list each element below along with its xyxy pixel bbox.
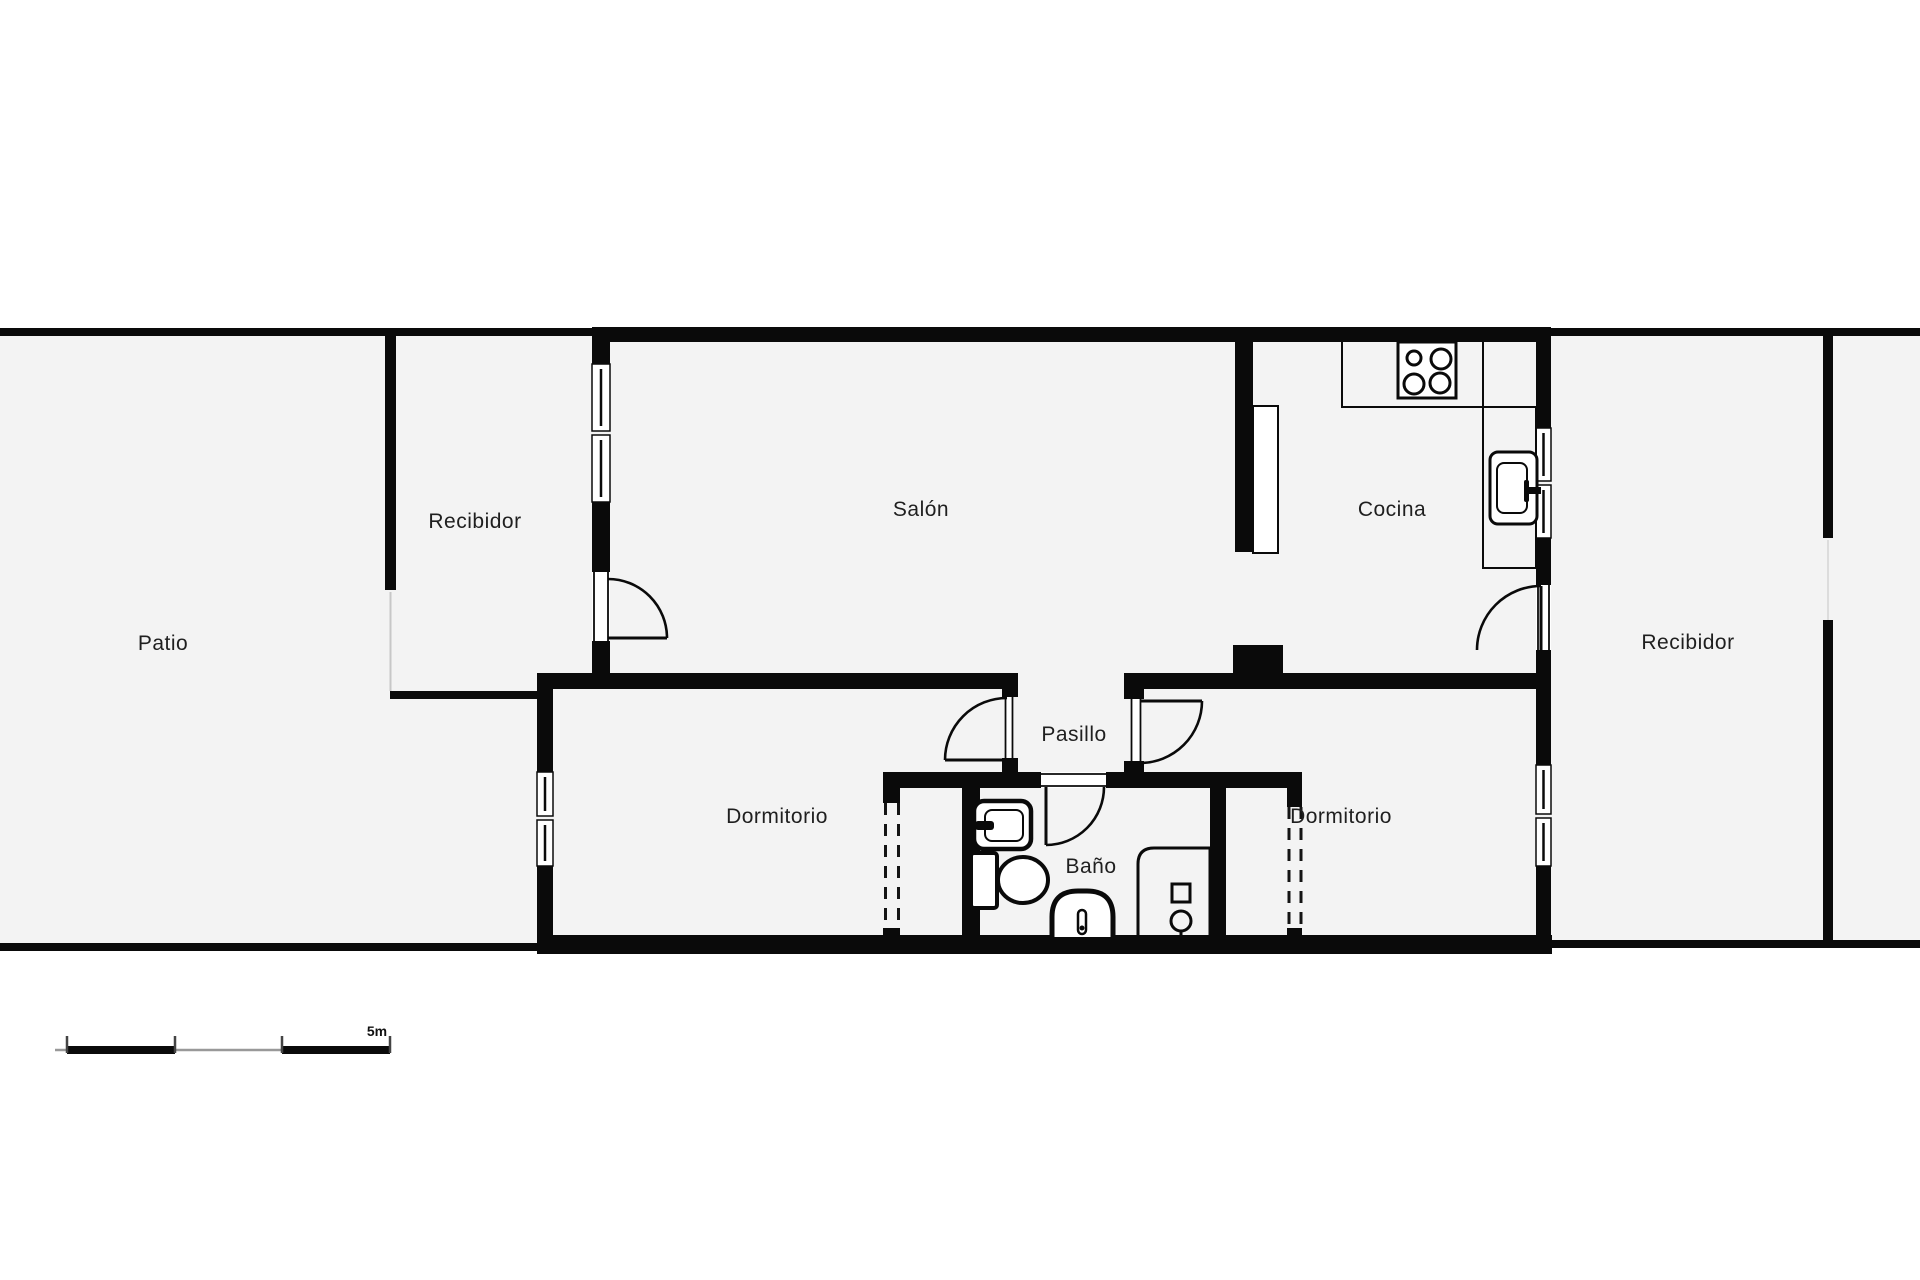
floor-plan-drawing: Patio Recibidor Salón Cocina Recibidor D… [0,0,1920,1280]
wall [1124,673,1551,689]
door-frame [1004,697,1014,758]
door-frame [1041,772,1106,788]
wall-stub [1287,928,1302,938]
wall [592,502,610,572]
door-frame [592,572,610,641]
wall [537,673,553,772]
wall [1124,761,1144,788]
window-icon [592,435,610,502]
window-icon [1536,765,1551,814]
bathroom-sink-icon [974,801,1031,849]
wall [1536,866,1551,954]
window-icon [537,772,553,816]
wall [1823,328,1833,538]
room-label-recibidor-right: Recibidor [1641,631,1734,654]
room-label-cocina: Cocina [1358,498,1426,521]
room-label-dormitorio-right: Dormitorio [1290,805,1392,828]
window-icon [537,820,553,866]
wall [1536,327,1551,428]
room-label-bano: Baño [1065,855,1116,878]
wall-stub [883,788,900,803]
wall-stub [883,928,900,938]
window-icon [1536,818,1551,866]
wall [0,328,597,336]
wall [390,691,540,699]
room-label-pasillo: Pasillo [1041,723,1106,746]
wall [537,935,1552,954]
wall [592,327,1551,342]
wall [1210,772,1226,954]
wall [0,943,545,951]
wall [1823,620,1833,948]
wall [1002,758,1018,788]
scale-bar-segment [282,1046,390,1054]
wall [1235,327,1253,552]
bidet-icon [1052,891,1113,937]
wall [537,866,553,954]
floor-plan-page: Patio Recibidor Salón Cocina Recibidor D… [0,0,1920,1280]
wall [1002,673,1018,697]
kitchen-cabinet [1253,406,1278,553]
room-label-recibidor-left: Recibidor [428,510,521,533]
wall [1546,328,1920,336]
wall [1546,940,1920,948]
scale-bar-label: 5m [367,1023,387,1039]
window-icon [592,364,610,431]
wall [592,327,610,364]
toilet-icon [971,853,1048,908]
kitchen-sink-icon [1490,452,1541,524]
wall [1536,650,1551,765]
wall [592,641,610,689]
wall [1124,673,1144,699]
door-frame [1536,585,1551,650]
stove-icon [1398,342,1456,398]
room-label-salon: Salón [893,498,949,521]
wall-pillar [1233,645,1283,689]
room-label-patio: Patio [138,632,188,655]
scale-bar: 5m [55,1023,390,1054]
door-frame [1130,699,1142,761]
wall [1536,538,1551,585]
room-label-dormitorio-left: Dormitorio [726,805,828,828]
scale-bar-segment [67,1046,175,1054]
floor-area [0,332,1920,946]
wall [385,328,396,590]
